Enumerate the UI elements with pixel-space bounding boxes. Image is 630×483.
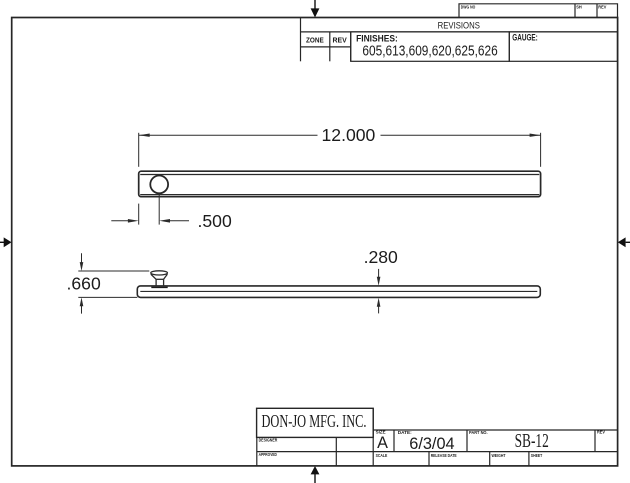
svg-text:ZONE: ZONE <box>306 36 324 44</box>
svg-text:RELEASE DATE: RELEASE DATE <box>431 453 458 459</box>
svg-text:SH: SH <box>576 5 582 11</box>
svg-text:GAUGE:: GAUGE: <box>512 32 538 42</box>
svg-text:6/3/04: 6/3/04 <box>409 435 454 453</box>
svg-text:.500: .500 <box>198 211 232 231</box>
svg-text:DON-JO MFG. INC.: DON-JO MFG. INC. <box>262 411 367 431</box>
svg-text:SHEET: SHEET <box>531 453 543 459</box>
svg-text:A: A <box>377 434 388 452</box>
svg-text:DESIGNER: DESIGNER <box>259 437 278 443</box>
svg-text:SB-12: SB-12 <box>515 430 549 452</box>
svg-text:DWG NO: DWG NO <box>461 5 476 11</box>
svg-text:APPROVED: APPROVED <box>259 452 278 458</box>
svg-text:.660: .660 <box>67 274 101 294</box>
svg-text:REV: REV <box>598 5 607 11</box>
svg-text:PART NO.: PART NO. <box>469 430 488 436</box>
svg-text:12.000: 12.000 <box>322 125 376 145</box>
svg-text:WEIGHT: WEIGHT <box>492 453 506 459</box>
svg-text:REVISIONS: REVISIONS <box>438 20 480 31</box>
svg-text:REV: REV <box>333 36 348 44</box>
svg-text:605,613,609,620,625,626: 605,613,609,620,625,626 <box>362 42 497 59</box>
svg-text:REV: REV <box>597 430 606 436</box>
svg-text:.280: .280 <box>364 247 398 267</box>
svg-text:SCALE: SCALE <box>376 453 388 459</box>
